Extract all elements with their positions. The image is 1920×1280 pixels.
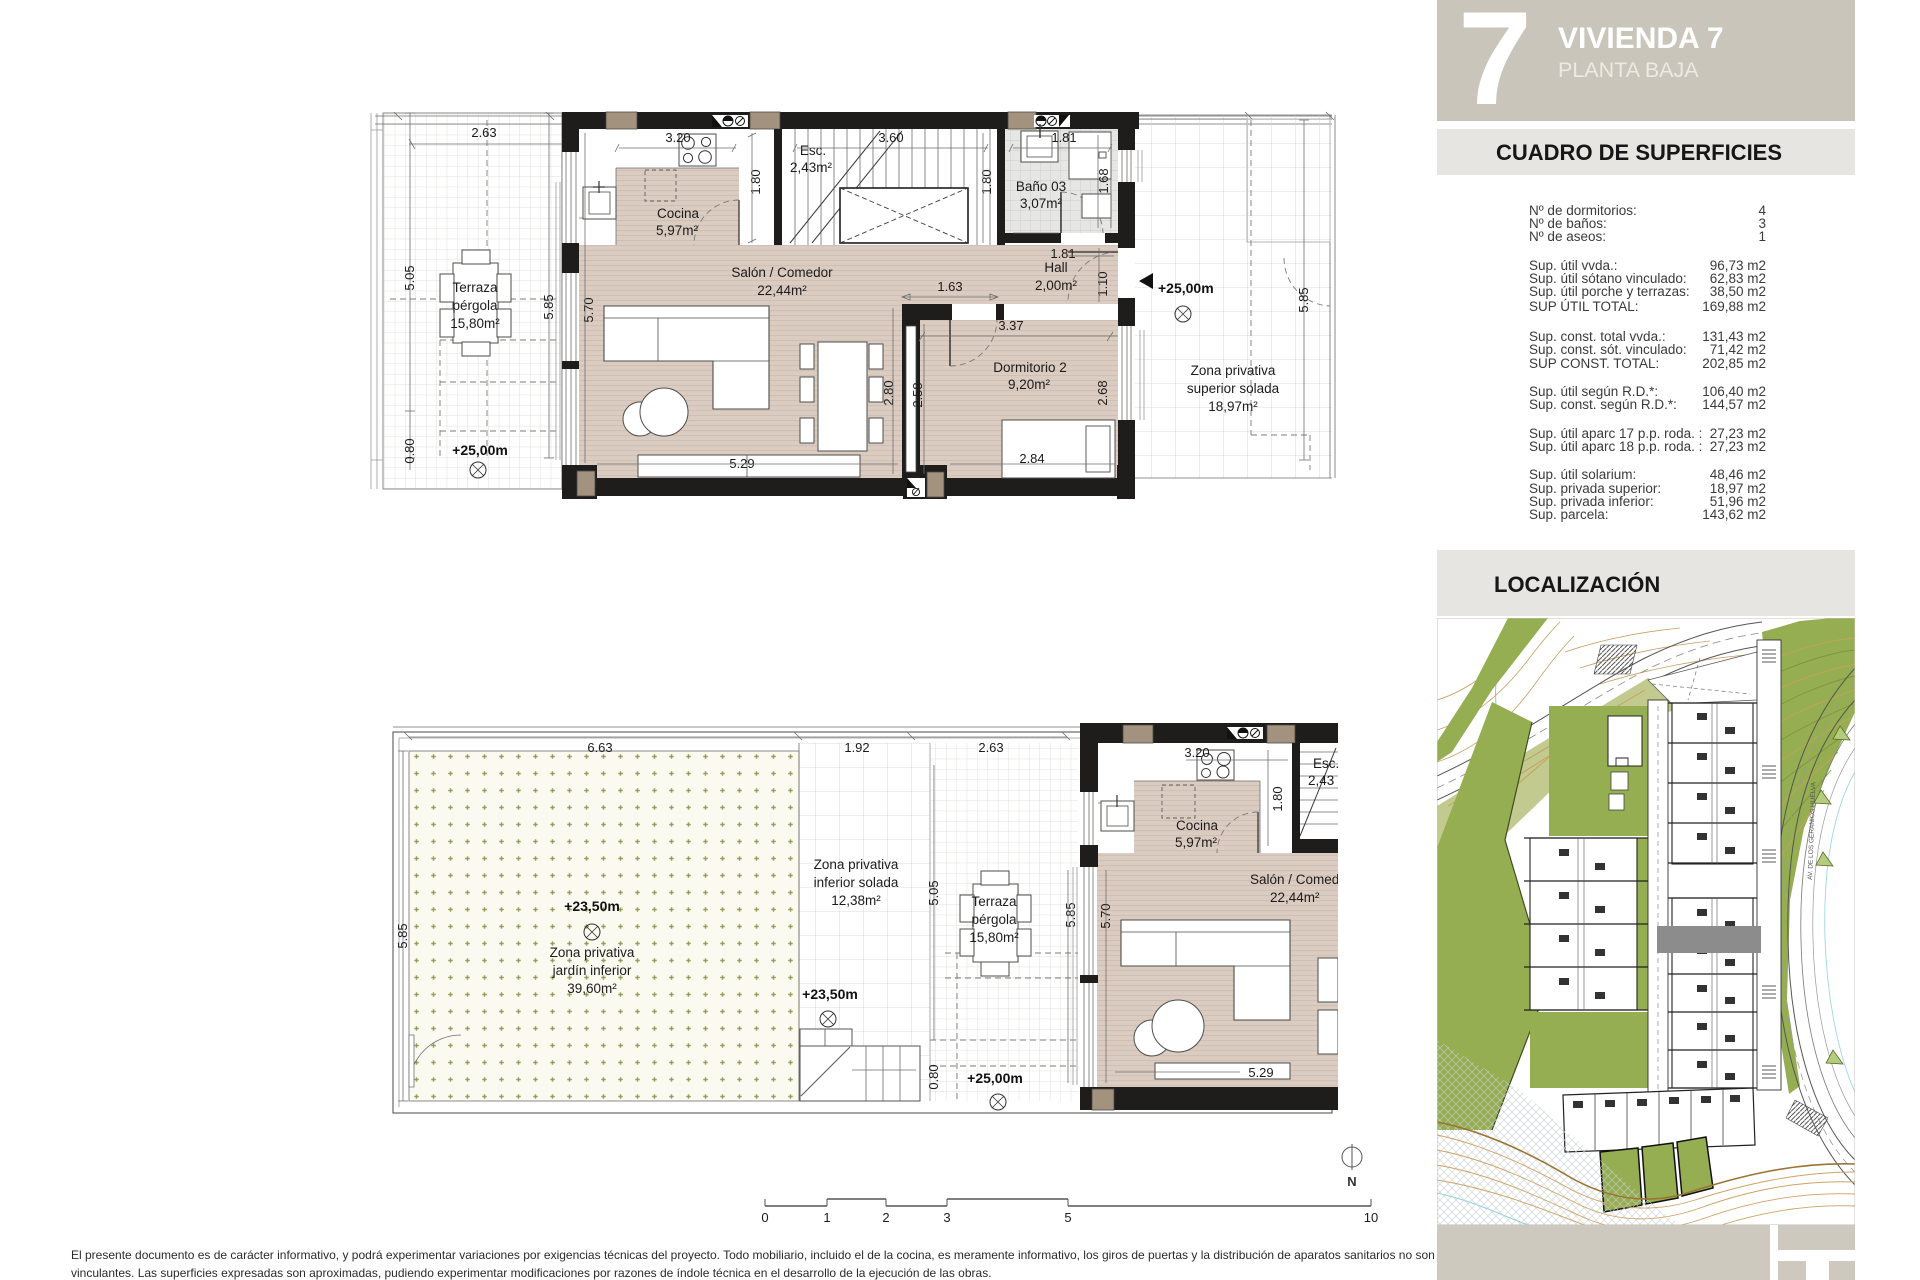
svg-text:27,23 m2: 27,23 m2 [1710,439,1766,454]
svg-text:39,60m²: 39,60m² [567,981,617,996]
svg-text:Zona privativa: Zona privativa [814,857,899,872]
svg-text:1.80: 1.80 [1270,786,1285,811]
svg-text:1.81: 1.81 [1051,130,1076,145]
svg-text:2.80: 2.80 [881,380,896,405]
svg-text:3.20: 3.20 [1184,745,1209,760]
svg-text:+25,00m: +25,00m [1158,280,1214,296]
svg-text:5,97m²: 5,97m² [656,223,699,238]
svg-text:5.85: 5.85 [1296,287,1311,312]
svg-text:LOCALIZACIÓN: LOCALIZACIÓN [1494,572,1660,597]
svg-text:15,80m²: 15,80m² [450,316,500,331]
svg-text:Zona privativa: Zona privativa [550,945,635,960]
svg-text:5.70: 5.70 [1098,903,1113,928]
svg-text:22,44m²: 22,44m² [757,283,807,298]
svg-text:10: 10 [1364,1210,1378,1225]
svg-text:+23,50m: +23,50m [564,898,620,914]
svg-text:1: 1 [823,1210,830,1225]
svg-text:Terraza: Terraza [971,894,1017,909]
svg-text:2.68: 2.68 [1095,380,1110,405]
svg-text:3.37: 3.37 [998,318,1023,333]
svg-text:71,42 m2: 71,42 m2 [1710,342,1766,357]
svg-text:22,44m²: 22,44m² [1270,890,1320,905]
svg-text:+25,00m: +25,00m [452,442,508,458]
svg-text:Salón / Comedor: Salón / Comedor [1250,872,1352,887]
svg-text:Terraza: Terraza [452,280,498,295]
svg-text:2,43m²: 2,43m² [790,160,833,175]
svg-text:Dormitorio 2: Dormitorio 2 [993,360,1067,375]
svg-text:5.29: 5.29 [729,456,754,471]
svg-text:Esc.: Esc. [800,143,826,158]
svg-text:1.10: 1.10 [1095,271,1110,296]
svg-text:El presente documento es de ca: El presente documento es de carácter inf… [71,1248,1435,1262]
svg-text:2.58: 2.58 [910,382,925,407]
svg-text:+25,00m: +25,00m [967,1070,1023,1086]
svg-text:15,80m²: 15,80m² [969,930,1019,945]
svg-text:1.92: 1.92 [844,740,869,755]
svg-text:5.05: 5.05 [926,880,941,905]
svg-text:5: 5 [1064,1210,1071,1225]
svg-text:0.80: 0.80 [926,1064,941,1089]
svg-text:7: 7 [1458,0,1532,133]
svg-text:3.60: 3.60 [878,130,903,145]
svg-text:6.63: 6.63 [587,740,612,755]
svg-text:169,88 m2: 169,88 m2 [1702,299,1766,314]
svg-text:3: 3 [943,1210,950,1225]
svg-text:Zona privativa: Zona privativa [1191,363,1276,378]
svg-text:143,62 m2: 143,62 m2 [1702,507,1766,522]
svg-text:0.80: 0.80 [402,438,417,463]
svg-text:1.80: 1.80 [748,169,763,194]
svg-text:Hall: Hall [1044,260,1067,275]
svg-text:5.85: 5.85 [541,294,556,319]
svg-text:Sup. const. sót. vinculado:: Sup. const. sót. vinculado: [1529,342,1687,357]
svg-text:pérgola: pérgola [452,298,498,313]
svg-text:144,57 m2: 144,57 m2 [1702,397,1766,412]
svg-text:VIVIENDA 7: VIVIENDA 7 [1558,22,1724,55]
svg-text:Cocina: Cocina [657,206,700,221]
svg-text:+23,50m: +23,50m [802,986,858,1002]
svg-text:Cocina: Cocina [1176,818,1219,833]
svg-text:Sup. útil solarium:: Sup. útil solarium: [1529,467,1636,482]
svg-text:Nº de aseos:: Nº de aseos: [1529,229,1606,244]
svg-text:Sup. parcela:: Sup. parcela: [1529,507,1609,522]
svg-text:SUP CONST. TOTAL:: SUP CONST. TOTAL: [1529,356,1659,371]
svg-text:1.63: 1.63 [937,279,962,294]
svg-text:N: N [1347,1174,1356,1189]
svg-text:38,50 m2: 38,50 m2 [1710,284,1766,299]
svg-text:2.63: 2.63 [978,740,1003,755]
svg-text:1.80: 1.80 [979,169,994,194]
svg-text:2,00m²: 2,00m² [1035,278,1078,293]
svg-text:superior solada: superior solada [1187,381,1280,396]
svg-text:5.85: 5.85 [395,923,410,948]
svg-text:pérgola: pérgola [971,912,1017,927]
svg-text:5.05: 5.05 [402,265,417,290]
svg-text:12,38m²: 12,38m² [831,893,881,908]
svg-text:1: 1 [1758,229,1766,244]
svg-text:Salón / Comedor: Salón / Comedor [731,265,833,280]
svg-text:jardín inferior: jardín inferior [552,963,632,978]
svg-text:PLANTA BAJA: PLANTA BAJA [1558,58,1699,82]
svg-text:vinculantes. Las superficies e: vinculantes. Las superficies expresadas … [71,1266,992,1280]
svg-text:2,43: 2,43 [1308,773,1334,788]
svg-text:9,20m²: 9,20m² [1008,377,1051,392]
svg-text:CUADRO DE SUPERFICIES: CUADRO DE SUPERFICIES [1496,140,1782,165]
svg-text:18,97m²: 18,97m² [1208,399,1258,414]
svg-text:48,46 m2: 48,46 m2 [1710,467,1766,482]
svg-text:0: 0 [761,1210,768,1225]
svg-text:2.63: 2.63 [471,125,496,140]
svg-text:202,85 m2: 202,85 m2 [1702,356,1766,371]
svg-text:Sup. útil aparc 18 p.p. roda.: Sup. útil aparc 18 p.p. roda. : [1529,439,1702,454]
svg-text:5,97m²: 5,97m² [1175,835,1218,850]
svg-text:Esc.: Esc. [1313,756,1339,771]
svg-text:3.20: 3.20 [665,130,690,145]
svg-text:SUP ÚTIL TOTAL:: SUP ÚTIL TOTAL: [1529,299,1639,314]
svg-text:2: 2 [882,1210,889,1225]
svg-text:Baño 03: Baño 03 [1016,179,1066,194]
svg-text:5.29: 5.29 [1248,1065,1273,1080]
svg-text:5.70: 5.70 [581,297,596,322]
svg-text:inferior solada: inferior solada [814,875,899,890]
svg-text:Sup. útil porche y terrazas:: Sup. útil porche y terrazas: [1529,284,1690,299]
svg-text:5.85: 5.85 [1063,902,1078,927]
svg-text:1.81: 1.81 [1050,246,1075,261]
svg-text:Sup. const. según R.D.*:: Sup. const. según R.D.*: [1529,397,1677,412]
svg-text:3,07m²: 3,07m² [1020,196,1063,211]
